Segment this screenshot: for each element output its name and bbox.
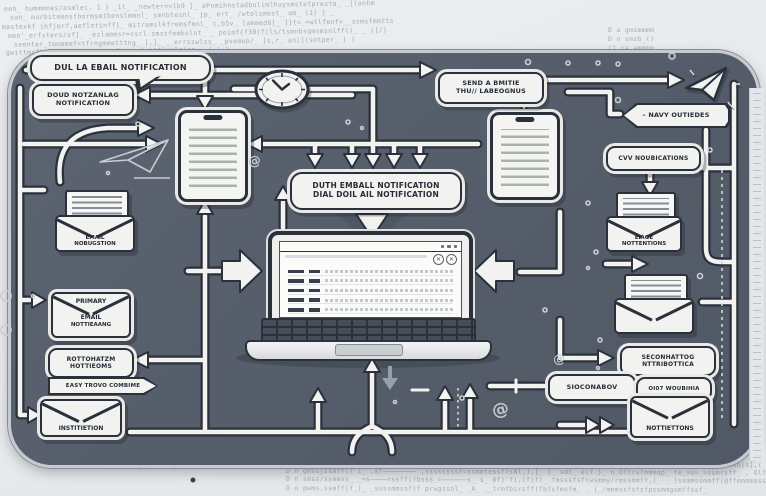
email-row [288, 307, 453, 315]
envelope-open-right: EIAOE NOTTENTIONS [606, 192, 682, 252]
banner-navy-outlets: – NAVY OUTIEDES [622, 103, 730, 128]
label-cvv-notifications: CVV NOUBICATIONS [606, 146, 701, 171]
label-text: NOTIFICATION [56, 100, 110, 108]
soft-gray-arrow [382, 366, 398, 390]
banner-text-wrap: – NAVY OUTIEDES [624, 105, 728, 126]
window-control-icon [441, 245, 445, 249]
envelope-flap [672, 398, 710, 419]
envelope-closed-primary: PRIMARY EMAIL NOTTIEAANG [51, 292, 131, 338]
label-text: THU// LABEOGNUS [456, 88, 526, 96]
label-text: CVV NOUBICATIONS [618, 155, 688, 162]
window-titlebar [280, 242, 461, 252]
email-row [288, 278, 453, 286]
label-text: SIOCONABOV [567, 384, 618, 392]
document-text-lines [501, 129, 550, 186]
label-text: NOBUGSTION [57, 241, 133, 247]
label-secondary: SIOCONABOV [548, 374, 636, 401]
email-row [288, 297, 453, 305]
label-rotation-notifications: ROTTOHATZM HOTTIEOMS [48, 348, 134, 378]
document-notch [203, 115, 222, 120]
label-text: NOTTIETTONS [632, 425, 708, 432]
document-text-lines [189, 128, 238, 187]
email-row [288, 268, 453, 276]
illustration-stage: een_ hummmnes/asmlec, 1 } _il_ _newter==… [0, 0, 766, 496]
envelope-open-email-notification: EMAIL NOBUGSTION [55, 190, 135, 252]
laptop-trackpad [335, 344, 403, 356]
window-control-icon [454, 245, 458, 249]
envelope-closed-bottom-right: NOTTIETTONS [630, 396, 710, 438]
envelope-flap [40, 401, 79, 422]
envelope-fold [614, 300, 652, 321]
document-icon-left [178, 110, 248, 202]
close-circle-icon: ✕ [446, 254, 457, 265]
label-text: HOTTIEOMS [70, 363, 112, 370]
label-text: SECONHATTOG [642, 354, 695, 361]
browser-window: ✕ ✕ [279, 241, 462, 318]
label-text: DIAL DOIL AIL NOTIFICATION [313, 191, 439, 200]
email-list [288, 268, 453, 314]
label-secondary-notifications: SECONHATTOG NTTRIBOTTICA [620, 346, 716, 376]
envelope-closed-bottom-left: INSTITIETION [40, 399, 122, 437]
clock-icon [254, 69, 310, 110]
document-notch [515, 117, 534, 122]
laptop-screen: ✕ ✕ [268, 231, 473, 326]
envelope-pocket: EMAIL NOBUGSTION [55, 215, 135, 252]
label-text: OI07 WOUBIHIA [648, 386, 699, 392]
label-text: EMAIL [53, 314, 129, 321]
label-text: NOTTENTIONS [608, 241, 680, 247]
envelope-flap [630, 398, 668, 419]
label-text: PRIMARY [53, 298, 129, 305]
envelope-pocket [614, 298, 694, 334]
label-cloud-notification: DOUD NOTZANLAG NOTIFICATION [32, 84, 134, 116]
envelope-open-right-lower [614, 274, 694, 334]
email-row [288, 287, 453, 295]
close-circle-icon: ✕ [433, 254, 444, 265]
envelope-pocket: EIAOE NOTTENTIONS [606, 216, 682, 252]
banner-easy-combine: EASY TROVO COMBIME [48, 377, 158, 395]
label-text: INSTITIETION [42, 425, 120, 432]
banner-text-wrap: EASY TROVO COMBIME [50, 379, 156, 393]
document-icon-right [490, 112, 560, 200]
bg-dot [191, 478, 196, 483]
laptop-base [245, 340, 492, 361]
address-bar [285, 255, 427, 258]
label-text: NOTTIEAANG [53, 322, 129, 328]
label-duth-email-notification: DUTH EMBALL NOTIFICATION DIAL DOIL AIL N… [290, 172, 462, 210]
label-text: DUL LA EBAIL NOTIFICATION [54, 63, 186, 72]
label-dual-email-notification: DUL LA EBAIL NOTIFICATION [30, 55, 211, 81]
label-text: ROTTOHATZM [67, 356, 116, 363]
label-text: – NAVY OUTIEDES [642, 112, 709, 120]
label-text: NTTRIBOTTICA [642, 361, 694, 368]
envelope-fold [656, 300, 694, 321]
envelope-flap [83, 401, 122, 422]
window-control-icon [447, 245, 451, 249]
label-text: EASY TROVO COMBIME [66, 383, 140, 389]
label-send-email: SEND A BMITIE THU// LABEOGNUS [438, 72, 544, 104]
